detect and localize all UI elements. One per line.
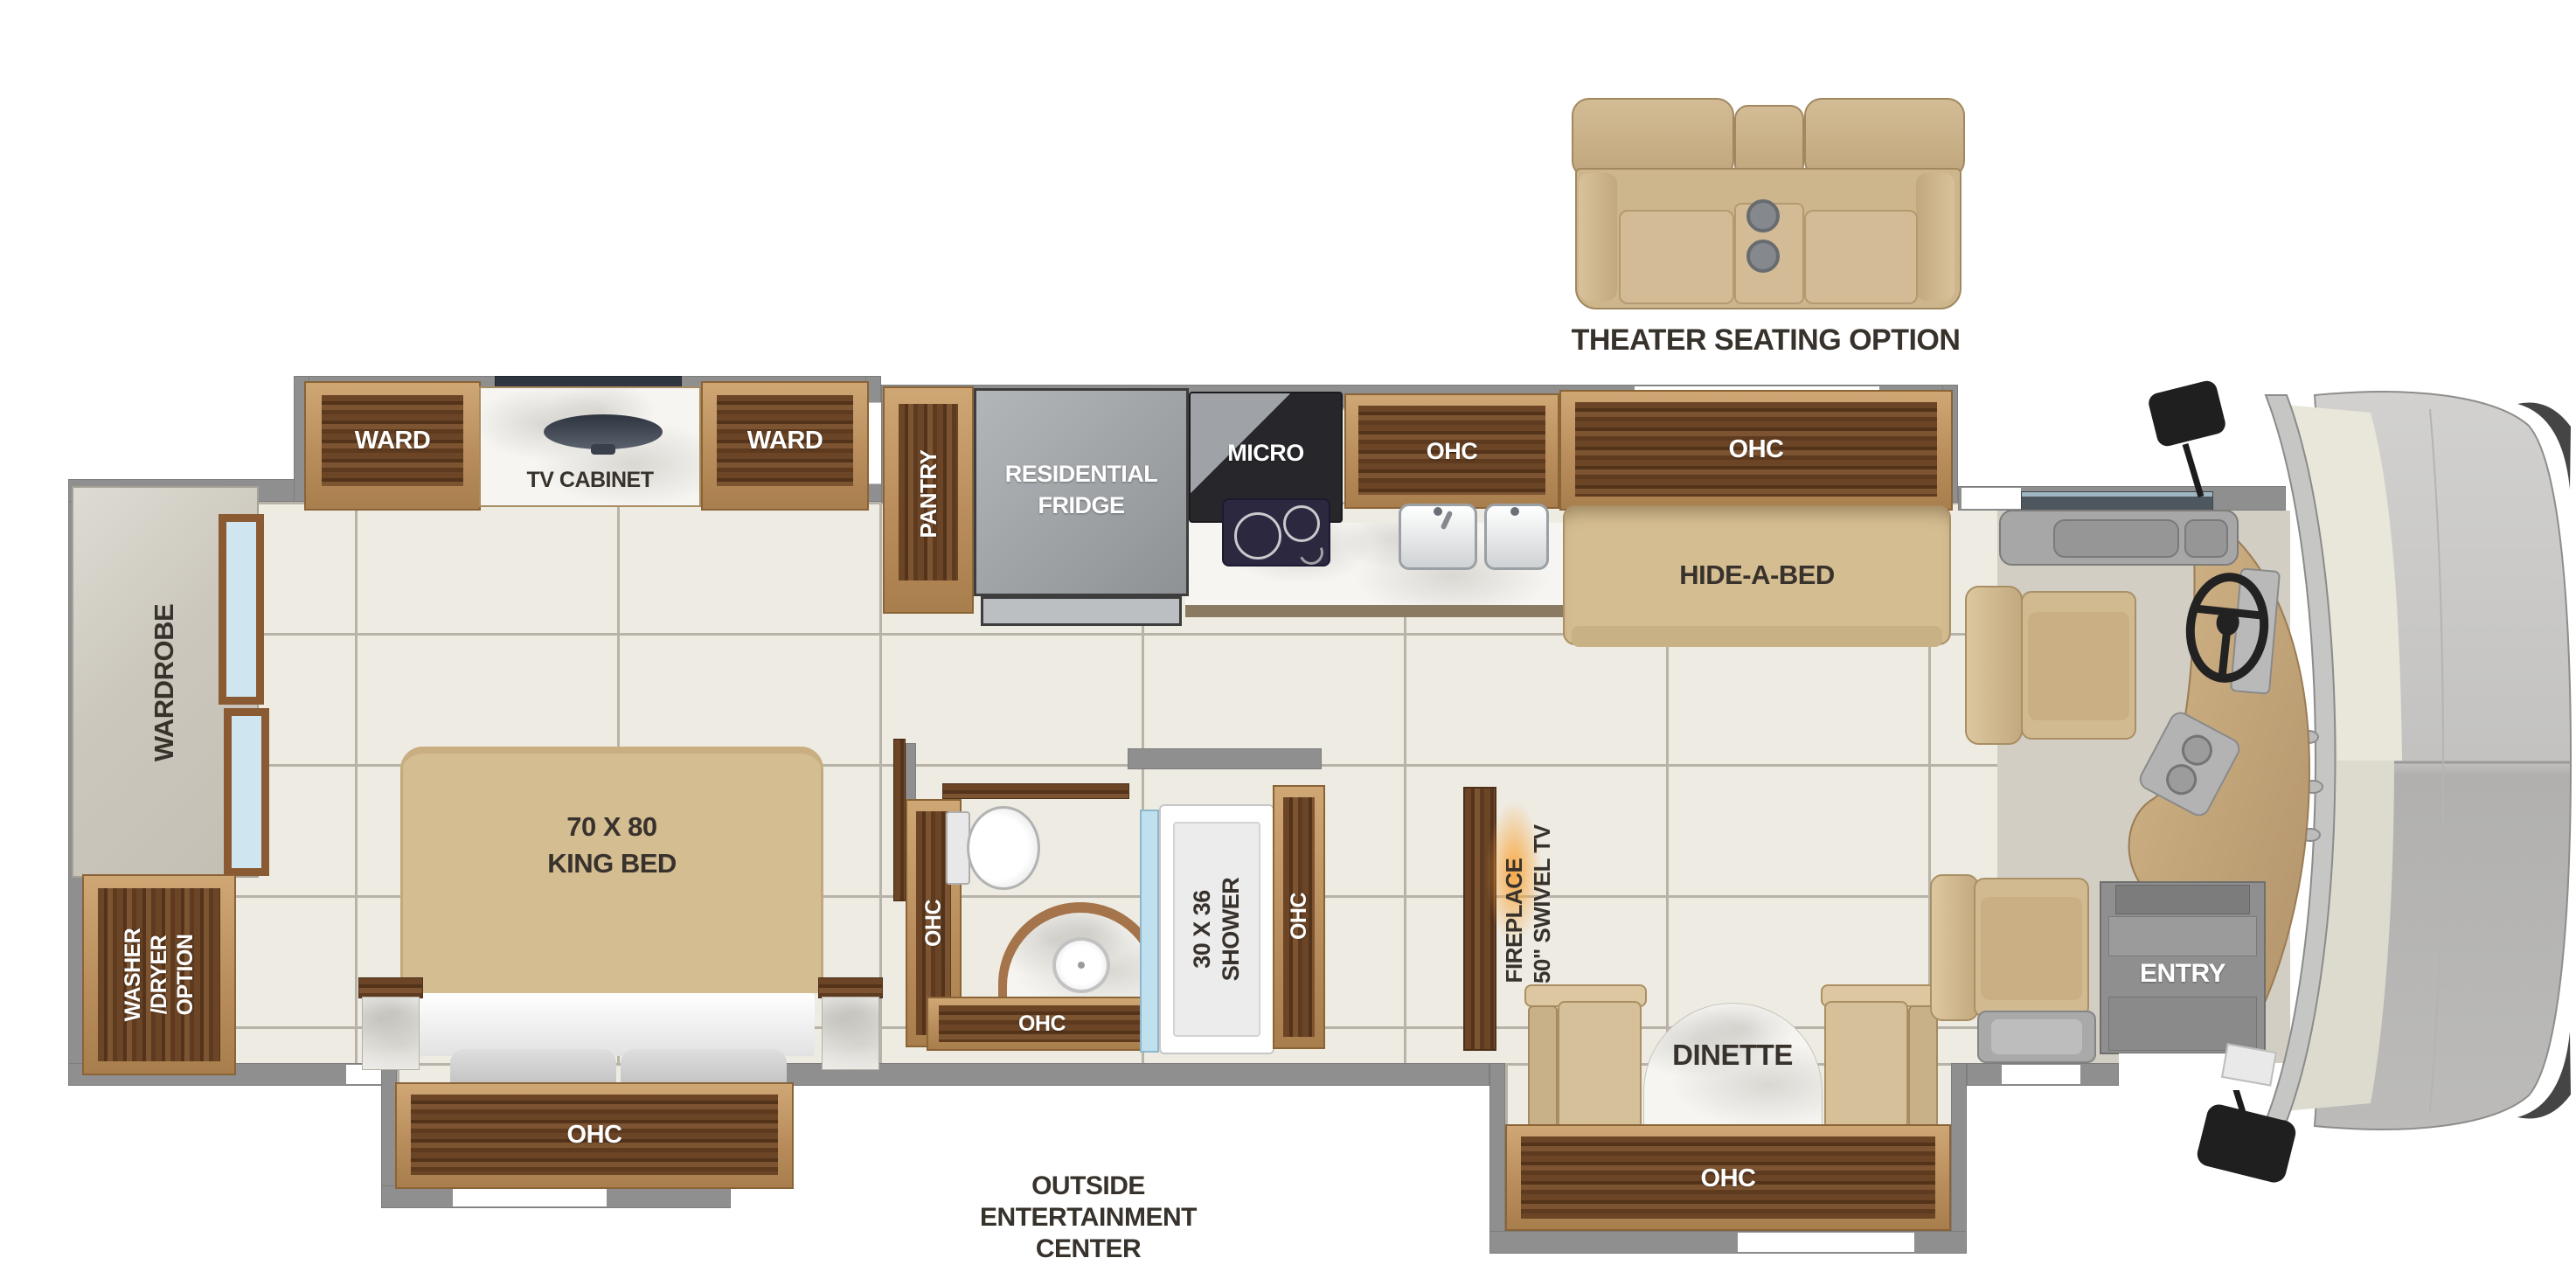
ward-right-face xyxy=(717,395,853,486)
bed-ohc-face xyxy=(411,1095,778,1175)
driver-seat-pad xyxy=(2028,612,2129,720)
entry-step-lower xyxy=(2108,997,2257,1051)
wardrobe-mirror-door xyxy=(224,708,269,876)
shower-floor xyxy=(1173,822,1260,1037)
bed-sheet xyxy=(409,993,815,1056)
cooktop-burner xyxy=(1283,505,1320,542)
nightstand-right-top xyxy=(818,977,883,998)
dinette-bench-left-back xyxy=(1528,1005,1558,1128)
toilet-icon xyxy=(967,806,1040,890)
ward-left-face xyxy=(322,395,463,486)
passenger-seat-pad xyxy=(1981,897,2082,1000)
bath-ohc-right-face xyxy=(1283,797,1315,1037)
bath-sink-drain xyxy=(1078,962,1085,969)
bath-pocket-door xyxy=(893,739,906,901)
bedohc-window-cutout xyxy=(453,1187,607,1206)
fridge-drawer xyxy=(981,596,1182,626)
cooktop-burner xyxy=(1234,512,1281,560)
theater-seat-left xyxy=(1619,210,1734,304)
king-bed xyxy=(400,747,823,993)
dinette-bench-right-back xyxy=(1908,1005,1938,1128)
kitchen-ohc2-face xyxy=(1575,402,1937,497)
passenger-seat-back xyxy=(1930,874,1979,1021)
dinette-window-cutout xyxy=(1738,1233,1914,1252)
hide-a-bed-base xyxy=(1572,626,1942,647)
outside-entertainment-label: OUTSIDE ENTERTAINMENT CENTER xyxy=(909,1170,1267,1265)
faucet-icon xyxy=(1434,507,1442,516)
tv-stand-icon xyxy=(591,444,615,455)
console-bin xyxy=(2185,520,2227,557)
theater-backrest-left xyxy=(1572,98,1734,178)
cupholder-icon xyxy=(1746,240,1780,273)
washer-dryer-face xyxy=(98,888,220,1061)
fireplace-glow xyxy=(1486,801,1542,944)
faucet-icon xyxy=(1510,507,1519,516)
theater-armrest-left xyxy=(1579,173,1617,301)
nightstand-right xyxy=(822,997,879,1070)
dinette-bench-right-seat xyxy=(1824,1001,1908,1129)
theater-armrest-right xyxy=(1916,173,1955,301)
rv-floorplan: THEATER SEATING OPTION xyxy=(0,0,2576,1265)
bath-top-wall xyxy=(1128,748,1322,769)
cupholder-icon xyxy=(1746,199,1780,233)
nightstand-left xyxy=(362,997,420,1070)
toilet-shelf xyxy=(942,783,1129,799)
shower-glass xyxy=(1140,810,1159,1053)
passenger-ottoman-pad xyxy=(1991,1019,2082,1054)
bath-ohc-bottom-face xyxy=(939,1005,1145,1042)
pocket-door-leaf xyxy=(868,402,882,484)
driver-seat-back xyxy=(1965,586,2023,745)
dinette-ohc-face xyxy=(1521,1136,1935,1219)
hide-a-bed-sofa xyxy=(1563,505,1951,645)
dinette-slideout-left-wall xyxy=(1489,1063,1505,1254)
entry-step-top xyxy=(2115,885,2250,914)
theater-seat-right xyxy=(1804,210,1918,304)
fridge xyxy=(974,388,1189,596)
wardrobe-mirror-door xyxy=(219,514,264,705)
pantry-face xyxy=(899,404,958,580)
entry-step-mid xyxy=(2108,916,2257,956)
kitchen-ohc1-face xyxy=(1358,406,1545,495)
nightstand-left-top xyxy=(358,977,423,998)
theater-backrest-right xyxy=(1804,98,1965,178)
dinette-bench-left-seat xyxy=(1558,1001,1642,1129)
side-mirror-icon-top xyxy=(2147,379,2228,497)
theater-seating-label: THEATER SEATING OPTION xyxy=(1556,322,1975,358)
console-bin xyxy=(2054,520,2178,557)
kitchen-counter-edge xyxy=(1185,605,1566,617)
